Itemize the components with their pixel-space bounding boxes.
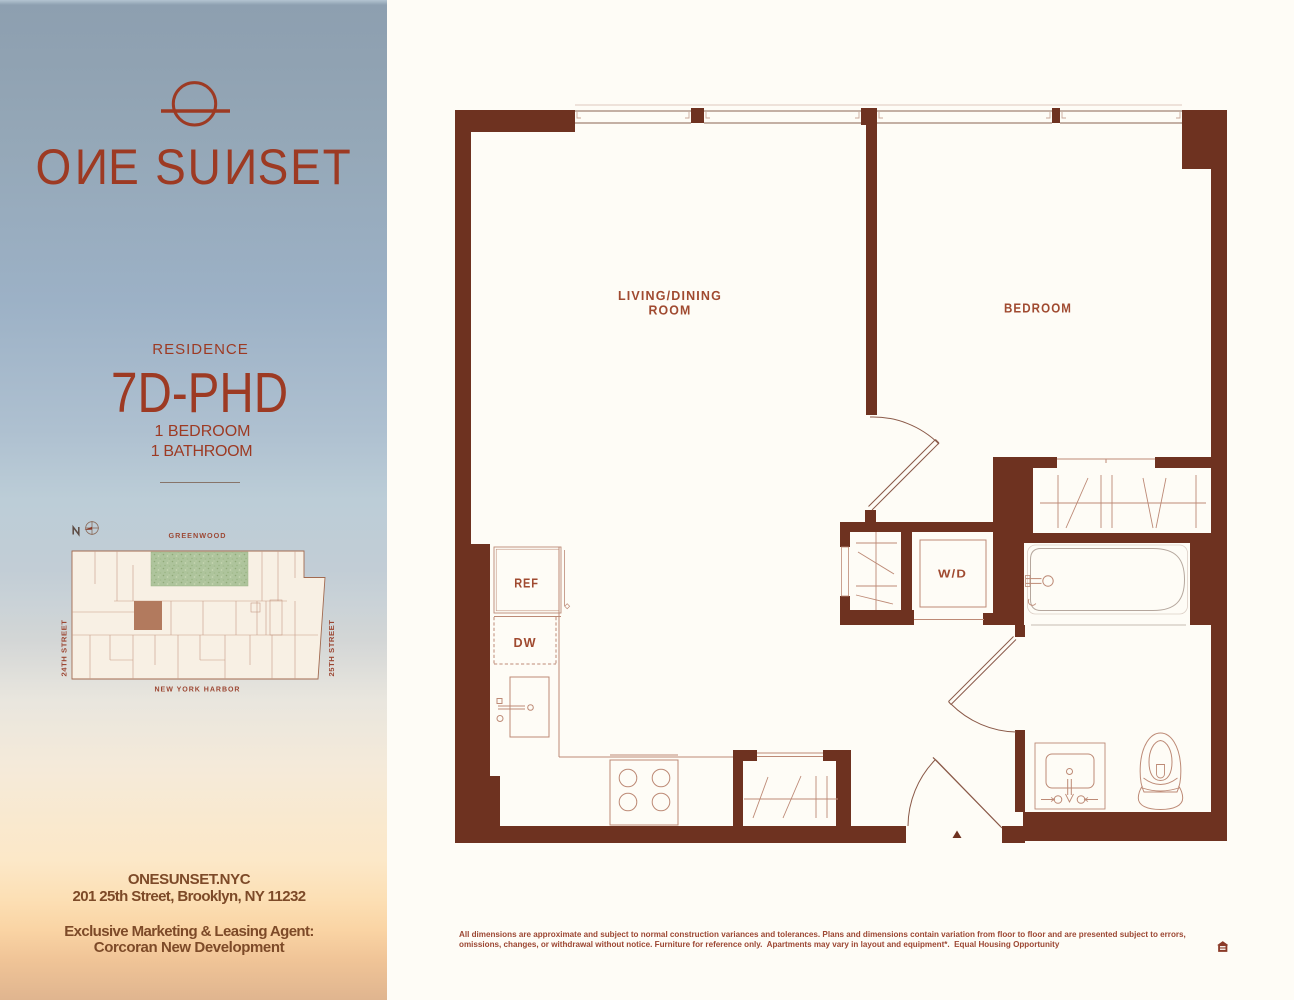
svg-text:ROOM: ROOM <box>649 303 692 318</box>
svg-text:25TH STREET: 25TH STREET <box>327 619 336 676</box>
svg-text:24TH STREET: 24TH STREET <box>60 619 69 676</box>
svg-text:LIVING/DINING: LIVING/DINING <box>618 288 722 303</box>
svg-text:W/D: W/D <box>938 569 967 581</box>
svg-text:GREENWOOD: GREENWOOD <box>169 531 227 540</box>
svg-text:BEDROOM: BEDROOM <box>1004 301 1072 316</box>
svg-text:NEW YORK HARBOR: NEW YORK HARBOR <box>155 685 241 694</box>
svg-text:REF: REF <box>514 576 539 591</box>
svg-text:DW: DW <box>514 635 537 650</box>
